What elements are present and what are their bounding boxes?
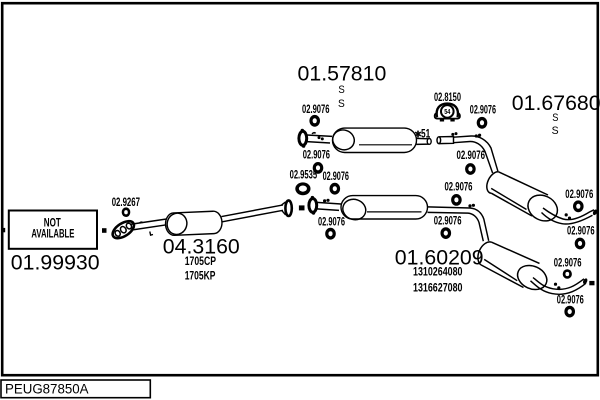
svg-text:02.9076: 02.9076	[567, 224, 595, 238]
svg-text:02.9076: 02.9076	[565, 187, 593, 201]
svg-text:S: S	[338, 84, 345, 96]
svg-text:S: S	[338, 98, 345, 110]
svg-text:S: S	[552, 125, 559, 137]
svg-text:1316627080: 1316627080	[413, 281, 463, 295]
svg-text:1705KP: 1705KP	[185, 268, 216, 282]
svg-text:02.9076: 02.9076	[434, 214, 462, 228]
svg-text:02.9076: 02.9076	[554, 255, 582, 269]
svg-text:PEUG87850A: PEUG87850A	[5, 381, 89, 397]
svg-text:1310264080: 1310264080	[413, 265, 463, 279]
svg-text:02.9076: 02.9076	[302, 102, 330, 116]
svg-text:02.9076: 02.9076	[470, 102, 496, 116]
svg-text:1705CP: 1705CP	[185, 254, 216, 268]
svg-text:02.8150: 02.8150	[434, 90, 461, 104]
svg-text:54: 54	[444, 107, 450, 116]
svg-text:02.9535: 02.9535	[290, 167, 318, 181]
svg-text:02.9076: 02.9076	[318, 214, 345, 228]
svg-text:01.99930: 01.99930	[11, 250, 100, 274]
svg-text:02.9076: 02.9076	[445, 179, 473, 193]
svg-text:51: 51	[421, 127, 431, 141]
svg-text:02.9076: 02.9076	[457, 148, 486, 162]
svg-text:02.9076: 02.9076	[303, 147, 331, 161]
svg-text:02.9076: 02.9076	[323, 169, 350, 183]
svg-text:AVAILABLE: AVAILABLE	[31, 227, 74, 241]
svg-text:02.9267: 02.9267	[112, 195, 141, 209]
svg-text:01.57810: 01.57810	[298, 61, 387, 85]
svg-text:02.9076: 02.9076	[557, 292, 584, 306]
svg-text:S: S	[552, 112, 559, 124]
